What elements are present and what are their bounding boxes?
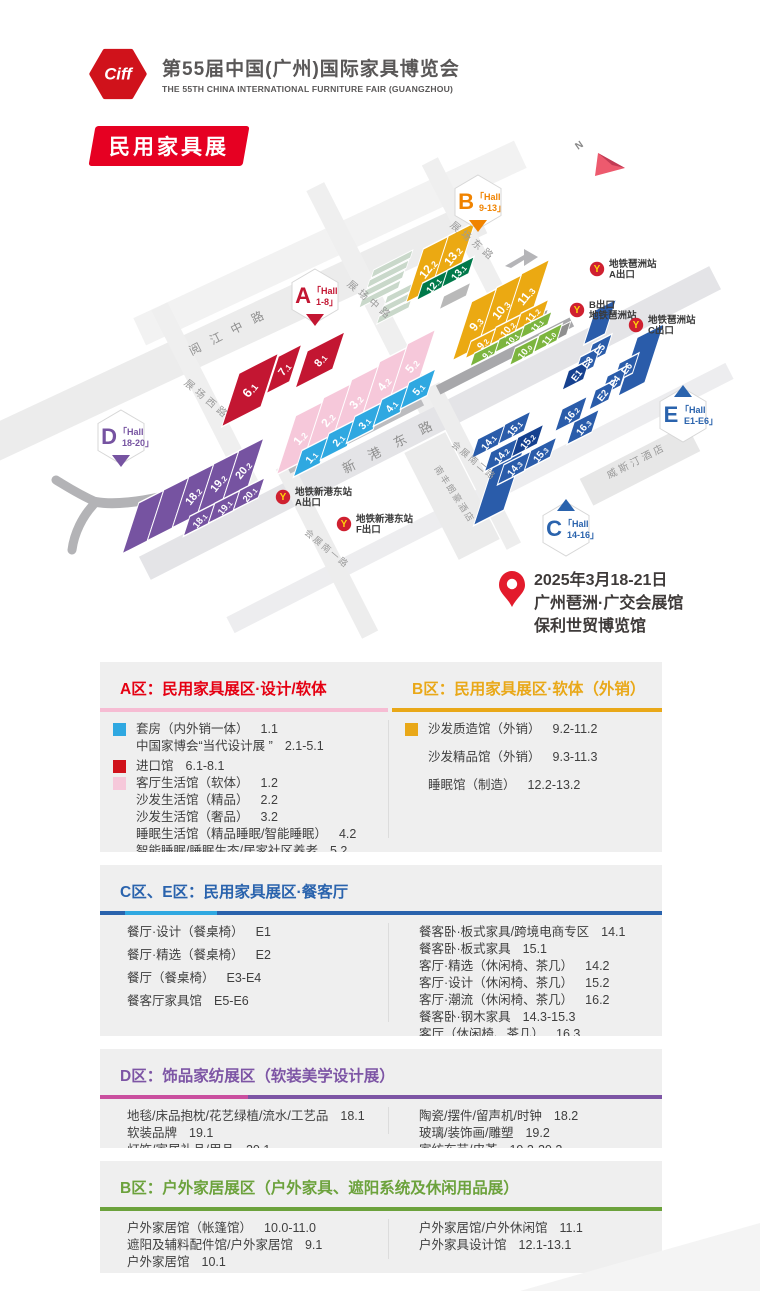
legend-item-number: 19.1 <box>189 1126 213 1141</box>
metro-icon: Y <box>594 264 601 275</box>
legend-item-number: 14.1 <box>601 925 625 940</box>
legend-item-label: 餐厅（餐桌椅） <box>127 971 215 986</box>
fair-dates: 2025年3月18-21日 <box>534 569 683 592</box>
legend-item: 玻璃/装饰画/雕塑19.2 <box>419 1126 662 1141</box>
underline-segment <box>100 708 388 712</box>
metro-exit-label: 地铁琶洲站C出口 <box>648 314 696 337</box>
badge-hall-line2: 18-20」 <box>122 438 154 448</box>
legend-item-number: 1.2 <box>261 776 278 791</box>
legend-item: 客厅生活馆（软体）1.2 <box>113 776 388 791</box>
legend-item: 户外家居馆10.1 <box>127 1255 388 1270</box>
road-arrow-icon <box>505 249 538 268</box>
metro-exit-label: 地铁琶洲站A出口 <box>609 258 657 281</box>
legend-item-number: 12.2-13.2 <box>528 778 581 793</box>
panel-column-left: 户外家居馆（帐篷馆）10.0-11.0遮阳及辅料配件馆/户外家居馆9.1户外家居… <box>100 1211 388 1272</box>
badge-hall-line2: E1-E6」 <box>684 416 718 426</box>
date-venue-text: 2025年3月18-21日 广州琶洲·广交会展馆 保利世贸博览馆 <box>534 569 683 638</box>
legend-item-label: 客厅·潮流（休闲椅、茶几） <box>419 993 573 1008</box>
badge-hall-line2: 14-16」 <box>567 530 599 540</box>
legend-item-number: 16.2 <box>585 993 609 1008</box>
panel-columns: 餐厅·设计（餐桌椅）E1餐厅·精选（餐桌椅）E2餐厅（餐桌椅）E3-E4餐客厅家… <box>100 915 662 1036</box>
legend-item-label: 餐客卧·板式家具 <box>419 942 511 957</box>
panel-column-left: A区：民用家具展区·设计/软体套房（内外销一体）1.1中国家博会“当代设计展 ”… <box>100 662 388 852</box>
legend-item-label: 餐客厅家具馆 <box>127 994 202 1009</box>
venue-line1: 广州琶洲·广交会展馆 <box>534 592 683 615</box>
legend-item-label: 玻璃/装饰画/雕塑 <box>419 1126 513 1141</box>
legend-item-label: 睡眠馆（制造） <box>428 778 516 793</box>
badge-hall-line1: 「Hall <box>118 426 144 437</box>
legend-item: 餐客卧·板式家具15.1 <box>419 942 662 957</box>
legend-item: 智能睡眠/睡眠生态/居家社区养老5.2 <box>113 844 388 852</box>
legend-item-label: 客厅·设计（休闲椅、茶几） <box>419 976 573 991</box>
legend-item: 陶瓷/摆件/留声机/时钟18.2 <box>419 1109 662 1124</box>
legend-item: 灯饰/家居礼品/用品20.1 <box>127 1143 388 1148</box>
badge-letter: E <box>664 402 679 427</box>
panel-columns: A区：民用家具展区·设计/软体套房（内外销一体）1.1中国家博会“当代设计展 ”… <box>100 662 662 852</box>
legend-item-list: 陶瓷/摆件/留声机/时钟18.2玻璃/装饰画/雕塑19.2家纺布艺/皮革19.2… <box>392 1109 662 1148</box>
legend-item-label: 陶瓷/摆件/留声机/时钟 <box>419 1109 542 1124</box>
badge-hall-line1: 「Hall <box>563 518 589 529</box>
legend-item-number: 15.2 <box>585 976 609 991</box>
legend-item-label: 地毯/床品抱枕/花艺绿植/流水/工艺品 <box>127 1109 328 1124</box>
legend-item-label: 沙发生活馆（奢品） <box>136 810 249 825</box>
fair-subtitle: THE 55TH CHINA INTERNATIONAL FURNITURE F… <box>162 84 460 94</box>
legend-panels: A区：民用家具展区·设计/软体套房（内外销一体）1.1中国家博会“当代设计展 ”… <box>100 662 662 1286</box>
legend-item-number: 6.1-8.1 <box>186 759 225 774</box>
north-label: N <box>573 139 585 152</box>
north-arrow-icon <box>595 153 625 176</box>
legend-panel-3: D区：饰品家纺展区（软装美学设计展）地毯/床品抱枕/花艺绿植/流水/工艺品18.… <box>100 1049 662 1148</box>
header: Ciff 第55届中国(广州)国际家具博览会 THE 55TH CHINA IN… <box>88 42 460 106</box>
legend-item-label: 餐厅·精选（餐桌椅） <box>127 948 244 963</box>
legend-item-number: 10.1 <box>202 1255 226 1270</box>
legend-item: 进口馆6.1-8.1 <box>113 759 388 774</box>
legend-item: 客厅（休闲椅、茶几）16.3 <box>419 1027 662 1036</box>
badge-tip-icon <box>306 314 324 326</box>
legend-item: 家纺布艺/皮革19.2-20.2 <box>419 1143 662 1148</box>
panel-column-left: 餐厅·设计（餐桌椅）E1餐厅·精选（餐桌椅）E2餐厅（餐桌椅）E3-E4餐客厅家… <box>100 915 388 1036</box>
elevated-road-fork-upper <box>56 480 96 502</box>
legend-item-number: 15.1 <box>523 942 547 957</box>
panel-header: A区：民用家具展区·设计/软体 <box>100 662 388 708</box>
column-divider <box>388 720 389 838</box>
legend-item-label: 智能睡眠/睡眠生态/居家社区养老 <box>136 844 318 852</box>
legend-item-label: 户外家居馆 <box>127 1255 190 1270</box>
color-swatch <box>113 777 126 790</box>
legend-item: 睡眠馆（制造）12.2-13.2 <box>405 778 662 793</box>
legend-item-number: E2 <box>256 948 271 963</box>
legend-item-number: 4.2 <box>339 827 356 842</box>
legend-item-list: 套房（内外销一体）1.1中国家博会“当代设计展 ”2.1-5.1进口馆6.1-8… <box>100 722 388 852</box>
badge-hall-line1: 「Hall <box>312 285 338 296</box>
badge-letter: C <box>546 516 562 541</box>
elevated-road-fork-lower <box>72 502 96 550</box>
legend-item: 客厅·潮流（休闲椅、茶几）16.2 <box>419 993 662 1008</box>
legend-item-label: 客厅（休闲椅、茶几） <box>419 1027 544 1036</box>
header-underline <box>392 708 662 712</box>
badge-tip-icon <box>557 499 575 511</box>
legend-item-label: 餐厅·设计（餐桌椅） <box>127 925 244 940</box>
header-underline <box>100 708 388 712</box>
badge-hall-line2: 9-13」 <box>479 203 506 213</box>
legend-panel-2: C区、E区：民用家具展区·餐客厅餐厅·设计（餐桌椅）E1餐厅·精选（餐桌椅）E2… <box>100 865 662 1036</box>
legend-item-label: 家纺布艺/皮革 <box>419 1143 497 1148</box>
legend-item-number: 16.3 <box>556 1027 580 1036</box>
location-pin-icon <box>497 569 527 609</box>
legend-item: 餐客卧·板式家具/跨境电商专区14.1 <box>419 925 662 940</box>
legend-item-list: 餐厅·设计（餐桌椅）E1餐厅·精选（餐桌椅）E2餐厅（餐桌椅）E3-E4餐客厅家… <box>100 925 388 1009</box>
legend-item: 餐厅·设计（餐桌椅）E1 <box>127 925 388 940</box>
legend-item-label: 沙发质造馆（外销） <box>428 722 541 737</box>
metro-icon: Y <box>280 492 287 503</box>
panel-header: B区：户外家居展区（户外家具、遮阳系统及休闲用品展） <box>100 1161 662 1207</box>
venue-line2: 保利世贸博览馆 <box>534 615 683 638</box>
legend-panel-1: A区：民用家具展区·设计/软体套房（内外销一体）1.1中国家博会“当代设计展 ”… <box>100 662 662 852</box>
title-block: 第55届中国(广州)国际家具博览会 THE 55TH CHINA INTERNA… <box>162 54 460 94</box>
legend-item-number: 9.1 <box>305 1238 322 1253</box>
badge-tip-icon <box>112 455 130 467</box>
legend-item: 餐厅·精选（餐桌椅）E2 <box>127 948 388 963</box>
badge-hall-line1: 「Hall <box>680 404 706 415</box>
legend-item-number: E3-E4 <box>227 971 262 986</box>
legend-item-number: E1 <box>256 925 271 940</box>
logo-text: Ciff <box>104 64 133 83</box>
legend-item: 软装品牌19.1 <box>127 1126 388 1141</box>
legend-item: 沙发生活馆（奢品）3.2 <box>113 810 388 825</box>
legend-item-number: 5.2 <box>330 844 347 852</box>
color-swatch <box>405 723 418 736</box>
legend-item-number: 10.0-11.0 <box>264 1221 316 1236</box>
legend-item-label: 睡眠生活馆（精品睡眠/智能睡眠） <box>136 827 327 842</box>
legend-item: 餐客厅家具馆E5-E6 <box>127 994 388 1009</box>
color-swatch <box>113 760 126 773</box>
date-venue-block: 2025年3月18-21日 广州琶洲·广交会展馆 保利世贸博览馆 <box>497 569 683 638</box>
metro-icon: Y <box>574 305 581 316</box>
hall-badge-D: D「Hall18-20」 <box>98 410 154 467</box>
legend-item-number: 14.3-15.3 <box>523 1010 576 1025</box>
legend-item-number: 2.2 <box>261 793 278 808</box>
ciff-logo-icon: Ciff <box>88 42 148 106</box>
legend-item-number: 18.1 <box>340 1109 364 1124</box>
legend-item: 沙发质造馆（外销）9.2-11.2 <box>405 722 662 737</box>
corner-decor <box>520 1223 760 1291</box>
metro-exit-marker: YB出口地铁琶洲站 <box>570 299 637 322</box>
legend-item-number: 18.2 <box>554 1109 578 1124</box>
panel-column-right: 餐客卧·板式家具/跨境电商专区14.1餐客卧·板式家具15.1客厅·精选（休闲椅… <box>388 915 662 1036</box>
metro-icon: Y <box>341 519 348 530</box>
legend-item-number: 9.2-11.2 <box>553 722 598 737</box>
legend-item-label: 户外家居馆（帐篷馆） <box>127 1221 252 1236</box>
panel-header: B区：民用家具展区·软体（外销） <box>392 662 662 708</box>
legend-item-label: 进口馆 <box>136 759 174 774</box>
legend-item-label: 中国家博会“当代设计展 ” <box>136 739 273 754</box>
legend-item-number: 3.2 <box>261 810 278 825</box>
legend-item-number: 20.1 <box>246 1143 270 1148</box>
legend-item-list: 地毯/床品抱枕/花艺绿植/流水/工艺品18.1软装品牌19.1灯饰/家居礼品/用… <box>100 1109 388 1148</box>
legend-item-label: 沙发生活馆（精品） <box>136 793 249 808</box>
legend-item: 餐客卧·钢木家具14.3-15.3 <box>419 1010 662 1025</box>
badge-letter: A <box>295 283 311 308</box>
metro-icon: Y <box>633 320 640 331</box>
legend-item-number: 19.2-20.2 <box>509 1143 562 1148</box>
badge-hall-line1: 「Hall <box>475 191 501 202</box>
legend-item-number: E5-E6 <box>214 994 249 1009</box>
panel-header: D区：饰品家纺展区（软装美学设计展） <box>100 1049 662 1095</box>
metro-exit-label: B出口地铁琶洲站 <box>589 299 637 322</box>
column-divider <box>388 923 389 1022</box>
legend-item-number: 9.3-11.3 <box>553 750 598 765</box>
badge-letter: D <box>101 424 117 449</box>
legend-item: 地毯/床品抱枕/花艺绿植/流水/工艺品18.1 <box>127 1109 388 1124</box>
ciff-poster: Ciff 第55届中国(广州)国际家具博览会 THE 55TH CHINA IN… <box>0 0 760 1291</box>
legend-item: 套房（内外销一体）1.1 <box>113 722 388 737</box>
legend-item-number: 19.2 <box>525 1126 549 1141</box>
metro-exit-marker: Y地铁琶洲站A出口 <box>590 258 657 281</box>
legend-item-label: 套房（内外销一体） <box>136 722 249 737</box>
legend-item-label: 客厅生活馆（软体） <box>136 776 249 791</box>
legend-item: 户外家居馆（帐篷馆）10.0-11.0 <box>127 1221 388 1236</box>
legend-item: 餐厅（餐桌椅）E3-E4 <box>127 971 388 986</box>
color-swatch <box>113 723 126 736</box>
legend-item-label: 餐客卧·板式家具/跨境电商专区 <box>419 925 589 940</box>
legend-item-label: 户外家具设计馆 <box>419 1238 507 1253</box>
legend-item: 沙发精品馆（外销）9.3-11.3 <box>405 750 662 765</box>
legend-item-label: 客厅·精选（休闲椅、茶几） <box>419 959 573 974</box>
hall-badge-C: C「Hall14-16」 <box>543 499 599 556</box>
legend-item-label: 沙发精品馆（外销） <box>428 750 541 765</box>
panel-column-right: B区：民用家具展区·软体（外销）沙发质造馆（外销）9.2-11.2沙发精品馆（外… <box>388 662 662 852</box>
legend-item-label: 餐客卧·钢木家具 <box>419 1010 511 1025</box>
legend-item: 遮阳及辅料配件馆/户外家居馆9.1 <box>127 1238 388 1253</box>
legend-item-label: 软装品牌 <box>127 1126 177 1141</box>
legend-item-number: 2.1-5.1 <box>285 739 324 754</box>
column-divider <box>388 1107 389 1134</box>
metro-exit-label: 地铁新港东站A出口 <box>295 486 353 509</box>
panel-header: C区、E区：民用家具展区·餐客厅 <box>100 865 662 911</box>
legend-item-number: 14.2 <box>585 959 609 974</box>
legend-item-label: 灯饰/家居礼品/用品 <box>127 1143 234 1148</box>
panel-column-right: 陶瓷/摆件/留声机/时钟18.2玻璃/装饰画/雕塑19.2家纺布艺/皮革19.2… <box>388 1099 662 1148</box>
badge-hall-line2: 1-8」 <box>316 297 338 307</box>
legend-item-list: 户外家居馆（帐篷馆）10.0-11.0遮阳及辅料配件馆/户外家居馆9.1户外家居… <box>100 1221 388 1270</box>
legend-item: 中国家博会“当代设计展 ”2.1-5.1 <box>113 739 388 754</box>
legend-item: 客厅·精选（休闲椅、茶几）14.2 <box>419 959 662 974</box>
legend-item-list: 沙发质造馆（外销）9.2-11.2沙发精品馆（外销）9.3-11.3睡眠馆（制造… <box>392 722 662 793</box>
fair-title: 第55届中国(广州)国际家具博览会 <box>162 54 460 81</box>
column-divider <box>388 1219 389 1259</box>
legend-item-list: 餐客卧·板式家具/跨境电商专区14.1餐客卧·板式家具15.1客厅·精选（休闲椅… <box>392 925 662 1036</box>
legend-item-label: 遮阳及辅料配件馆/户外家居馆 <box>127 1238 293 1253</box>
panel-column-left: 地毯/床品抱枕/花艺绿植/流水/工艺品18.1软装品牌19.1灯饰/家居礼品/用… <box>100 1099 388 1148</box>
legend-item: 睡眠生活馆（精品睡眠/智能睡眠）4.2 <box>113 827 388 842</box>
legend-item: 沙发生活馆（精品）2.2 <box>113 793 388 808</box>
legend-item: 客厅·设计（休闲椅、茶几）15.2 <box>419 976 662 991</box>
underline-segment <box>392 708 662 712</box>
legend-item-number: 1.1 <box>261 722 278 737</box>
panel-columns: 地毯/床品抱枕/花艺绿植/流水/工艺品18.1软装品牌19.1灯饰/家居礼品/用… <box>100 1099 662 1148</box>
badge-letter: B <box>458 189 474 214</box>
